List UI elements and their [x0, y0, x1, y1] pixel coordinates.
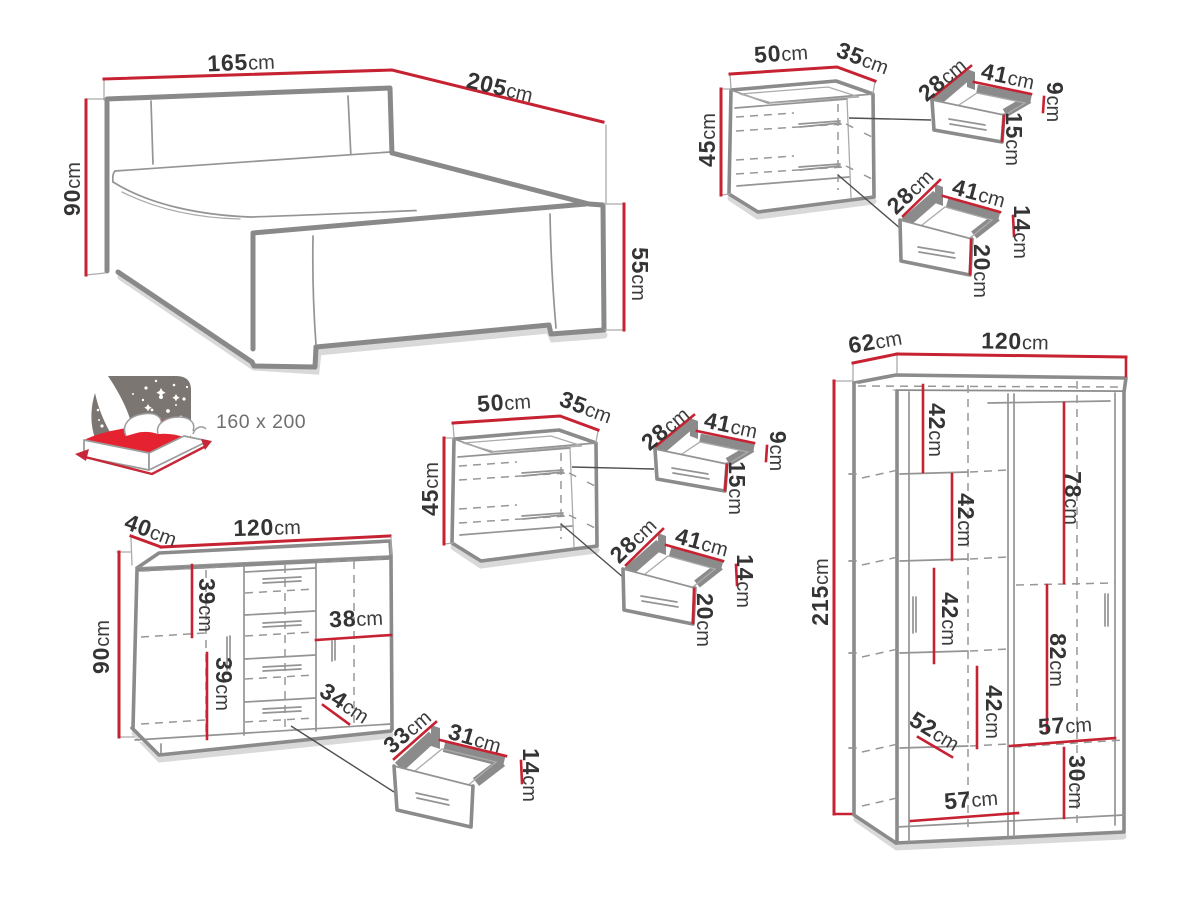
- svg-text:45cm: 45cm: [694, 113, 720, 167]
- svg-text:14cm: 14cm: [1009, 205, 1035, 259]
- svg-text:82cm: 82cm: [1045, 633, 1071, 687]
- svg-text:120cm: 120cm: [233, 513, 301, 541]
- svg-text:42cm: 42cm: [953, 493, 979, 547]
- svg-text:39cm: 39cm: [194, 578, 220, 632]
- svg-text:42cm: 42cm: [981, 685, 1007, 739]
- svg-text:90cm: 90cm: [88, 620, 114, 674]
- svg-text:42cm: 42cm: [937, 592, 963, 646]
- svg-text:215cm: 215cm: [807, 558, 833, 625]
- svg-text:14cm: 14cm: [518, 748, 544, 802]
- svg-text:42cm: 42cm: [924, 403, 950, 457]
- svg-text:15cm: 15cm: [1001, 112, 1027, 166]
- svg-text:9cm: 9cm: [1042, 82, 1068, 122]
- svg-text:78cm: 78cm: [1060, 471, 1086, 525]
- svg-text:165cm: 165cm: [207, 48, 276, 77]
- svg-text:90cm: 90cm: [59, 162, 85, 216]
- svg-text:30cm: 30cm: [1064, 755, 1090, 809]
- svg-text:160 x 200: 160 x 200: [216, 411, 306, 433]
- svg-text:55cm: 55cm: [627, 247, 653, 301]
- svg-text:39cm: 39cm: [211, 657, 237, 711]
- svg-text:20cm: 20cm: [969, 244, 995, 298]
- svg-text:120cm: 120cm: [981, 327, 1049, 354]
